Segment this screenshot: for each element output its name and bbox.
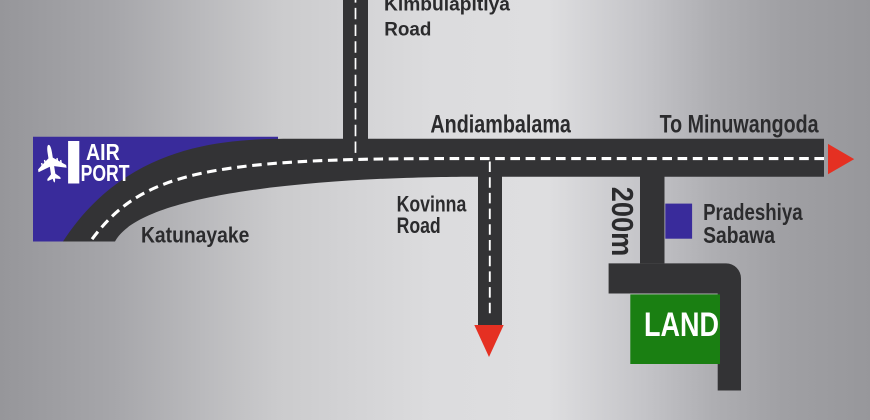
svg-text:200m: 200m xyxy=(605,187,640,256)
svg-text:LAND: LAND xyxy=(644,306,719,344)
svg-text:Road: Road xyxy=(397,213,441,238)
svg-text:PORT: PORT xyxy=(81,160,130,186)
svg-text:Kimbulapitiya: Kimbulapitiya xyxy=(384,0,510,16)
svg-text:To Minuwangoda: To Minuwangoda xyxy=(660,111,820,139)
svg-text:Katunayake: Katunayake xyxy=(141,223,249,248)
svg-text:Road: Road xyxy=(384,19,431,41)
svg-text:Pradeshiya: Pradeshiya xyxy=(703,199,803,225)
svg-text:Andiambalama: Andiambalama xyxy=(430,111,571,139)
svg-text:Sabawa: Sabawa xyxy=(703,222,776,248)
